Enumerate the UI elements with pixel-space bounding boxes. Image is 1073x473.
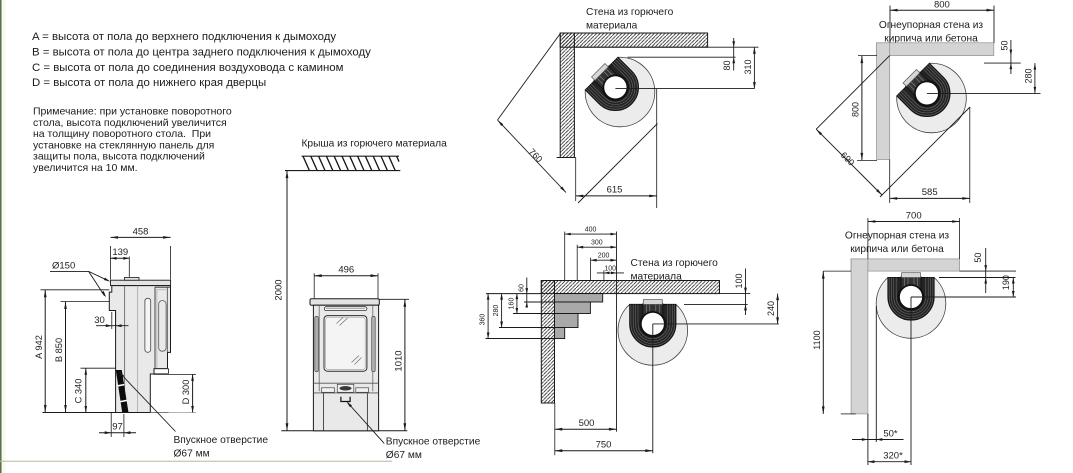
svg-text:280: 280: [1023, 68, 1033, 83]
svg-text:50*: 50*: [883, 429, 898, 440]
svg-text:100: 100: [604, 265, 616, 272]
svg-text:D 300: D 300: [181, 380, 191, 405]
svg-text:C 340: C 340: [74, 379, 84, 404]
svg-text:увеличится на 10 мм.: увеличится на 10 мм.: [33, 162, 138, 174]
svg-text:310: 310: [743, 59, 753, 74]
svg-text:Ø67 мм: Ø67 мм: [174, 449, 210, 460]
svg-text:A = высота от пола до верхнего: A = высота от пола до верхнего подключен…: [32, 31, 336, 43]
svg-text:139: 139: [112, 247, 128, 258]
svg-text:Стена из горючего: Стена из горючего: [586, 7, 674, 18]
svg-text:1010: 1010: [393, 350, 404, 371]
svg-text:496: 496: [338, 264, 354, 275]
svg-text:Огнеупорная стена из: Огнеупорная стена из: [879, 20, 984, 31]
svg-text:Впускное отверстие: Впускное отверстие: [386, 437, 481, 448]
svg-text:материала: материала: [586, 21, 638, 32]
svg-text:Примечание: при установке пово: Примечание: при установке поворотного: [33, 106, 232, 118]
svg-text:Ø67 мм: Ø67 мм: [386, 450, 422, 461]
svg-text:100: 100: [734, 273, 744, 288]
svg-text:750: 750: [596, 439, 612, 450]
svg-text:Стена из горючего: Стена из горючего: [631, 258, 719, 269]
svg-text:стола, высота подключений увел: стола, высота подключений увеличится: [33, 117, 227, 129]
svg-text:Крыша из горючего материала: Крыша из горючего материала: [302, 139, 448, 150]
svg-text:458: 458: [133, 226, 149, 237]
svg-text:D = высота от пола до нижнего: D = высота от пола до нижнего края дверц…: [32, 77, 266, 89]
svg-text:97: 97: [112, 421, 123, 432]
svg-text:160: 160: [509, 298, 516, 310]
svg-text:360: 360: [480, 314, 487, 326]
svg-text:B = высота от пола до центра з: B = высота от пола до центра заднего под…: [32, 46, 371, 58]
svg-text:A 942: A 942: [34, 335, 44, 359]
svg-text:615: 615: [607, 185, 623, 196]
svg-text:на толщину поворотного стола.: на толщину поворотного стола. При: [33, 128, 211, 140]
svg-text:280: 280: [493, 305, 500, 317]
svg-text:B 850: B 850: [54, 338, 64, 362]
svg-text:Ø150: Ø150: [52, 260, 75, 271]
svg-text:585: 585: [922, 187, 938, 198]
svg-text:80: 80: [722, 60, 732, 70]
svg-text:800: 800: [934, 0, 950, 11]
svg-text:Огнеупорная стена из: Огнеупорная стена из: [845, 231, 950, 242]
svg-text:50: 50: [973, 253, 983, 263]
svg-text:C = высота от пола до соединен: C = высота от пола до соединения воздухо…: [32, 62, 344, 74]
svg-text:300: 300: [591, 240, 603, 247]
svg-text:кирпича или бетона: кирпича или бетона: [850, 243, 944, 255]
svg-text:1100: 1100: [812, 330, 822, 349]
svg-text:190: 190: [1001, 275, 1011, 290]
svg-text:240: 240: [766, 301, 776, 316]
svg-text:700: 700: [906, 210, 922, 221]
svg-text:320*: 320*: [883, 451, 903, 462]
svg-text:200: 200: [598, 253, 610, 260]
svg-text:800: 800: [850, 102, 860, 117]
svg-text:2000: 2000: [274, 279, 285, 300]
svg-text:30: 30: [94, 315, 105, 326]
svg-text:50: 50: [999, 40, 1009, 50]
svg-text:Впускное отверстие: Впускное отверстие: [174, 435, 269, 446]
svg-text:защиты пола, высота подключени: защиты пола, высота подключений: [33, 151, 205, 163]
svg-text:500: 500: [579, 418, 595, 429]
svg-text:400: 400: [585, 227, 597, 234]
svg-text:установке на стеклянную панель: установке на стеклянную панель для: [33, 139, 214, 151]
svg-text:60: 60: [518, 284, 525, 292]
